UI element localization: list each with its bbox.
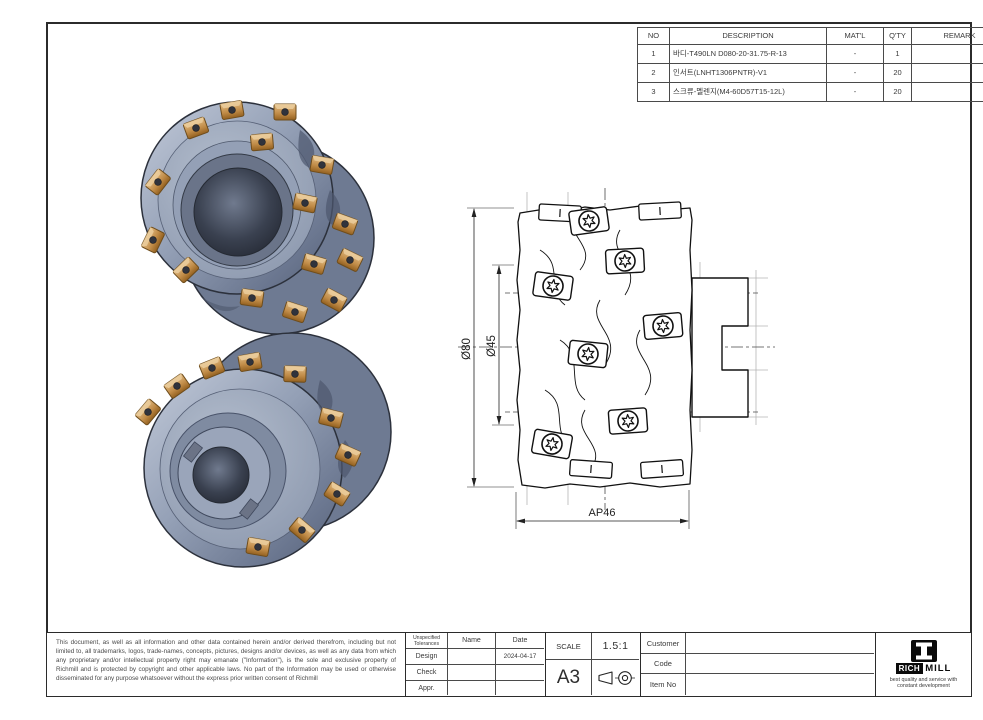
tolerance-block: Unspecified Tolerances Name Date Design … — [405, 632, 546, 697]
projection-symbol-cell — [592, 660, 639, 695]
bom-desc: 바디-T490LN D080-20-31.75-R-13 — [670, 45, 827, 64]
bom-header-row: NO DESCRIPTION MAT'L Q'TY REMARK — [638, 28, 983, 45]
bom-desc: 인서트(LNHT1306PNTR)-V1 — [670, 64, 827, 83]
customer-label: Customer — [641, 633, 686, 654]
appr-label: Appr. — [406, 681, 448, 695]
design-date: 2024-04-17 — [496, 649, 544, 665]
projection-symbol-icon — [595, 668, 637, 688]
bom-remark — [912, 83, 983, 102]
check-label: Check — [406, 665, 448, 681]
bom-table: NO DESCRIPTION MAT'L Q'TY REMARK 1 바디-T4… — [637, 27, 983, 102]
richmill-logo-icon — [909, 640, 939, 662]
table-row: 3 스크류-멜렌지(M4-60D57T15-12L) - 20 — [638, 83, 983, 102]
logo-wordmark: RICH MILL — [896, 663, 952, 674]
bom-qty: 20 — [884, 64, 912, 83]
check-date — [496, 665, 544, 681]
bom-desc: 스크류-멜렌지(M4-60D57T15-12L) — [670, 83, 827, 102]
item-no-value — [686, 674, 874, 695]
bom-no: 3 — [638, 83, 670, 102]
name-column-header: Name — [448, 633, 496, 649]
bom-matl: - — [827, 64, 884, 83]
legal-notice: This document, as well as all informatio… — [46, 632, 406, 697]
table-row: 1 바디-T490LN D080-20-31.75-R-13 - 1 — [638, 45, 983, 64]
bom-qty: 1 — [884, 45, 912, 64]
table-row: 2 인서트(LNHT1306PNTR)-V1 - 20 — [638, 64, 983, 83]
logo-tagline: best quality and service with constant d… — [882, 677, 966, 690]
logo-mill-text: MILL — [925, 663, 951, 674]
sheet-size: A3 — [546, 660, 592, 695]
scale-label: SCALE — [546, 633, 592, 660]
appr-date — [496, 681, 544, 695]
bom-no: 2 — [638, 64, 670, 83]
bom-header-desc: DESCRIPTION — [670, 28, 827, 45]
code-value — [686, 654, 874, 674]
scale-value: 1.5:1 — [592, 633, 639, 660]
code-label: Code — [641, 654, 686, 674]
date-column-header: Date — [496, 633, 544, 649]
design-label: Design — [406, 649, 448, 665]
bom-remark — [912, 64, 983, 83]
bom-matl: - — [827, 45, 884, 64]
bom-header-qty: Q'TY — [884, 28, 912, 45]
bom-header-no: NO — [638, 28, 670, 45]
appr-name — [448, 681, 496, 695]
bom-qty: 20 — [884, 83, 912, 102]
drawing-sheet: Ø80 Ø45 AP46 NO D — [0, 0, 983, 720]
bom-matl: - — [827, 83, 884, 102]
check-name — [448, 665, 496, 681]
scale-block: SCALE 1.5:1 A3 — [545, 632, 641, 697]
customer-value — [686, 633, 874, 654]
bom-no: 1 — [638, 45, 670, 64]
item-no-label: Item No — [641, 674, 686, 695]
bom-header-remark: REMARK — [912, 28, 983, 45]
bom-header-matl: MAT'L — [827, 28, 884, 45]
sheet-border — [46, 22, 972, 697]
tolerances-header: Unspecified Tolerances — [406, 633, 448, 649]
info-block: Customer Code Item No — [640, 632, 876, 697]
bom-remark — [912, 45, 983, 64]
design-name — [448, 649, 496, 665]
logo-rich-text: RICH — [896, 663, 924, 674]
richmill-logo: RICH MILL best quality and service with … — [875, 632, 972, 697]
